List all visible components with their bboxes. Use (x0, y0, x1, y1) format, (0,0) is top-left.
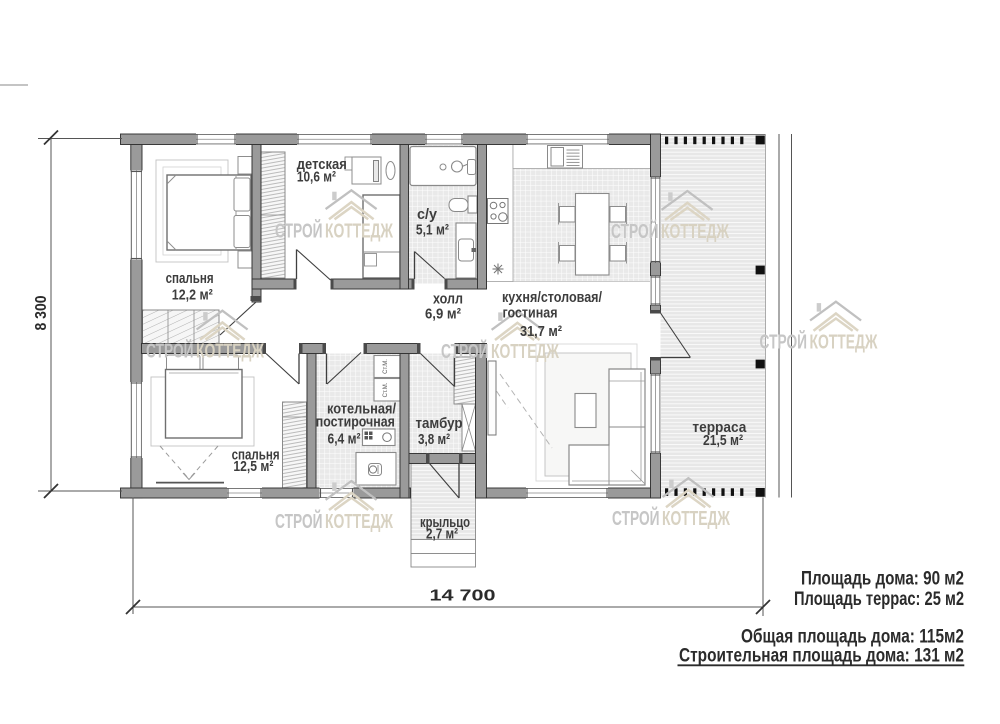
svg-text:постирочная: постирочная (316, 414, 395, 431)
svg-text:тамбур: тамбур (416, 415, 463, 432)
svg-text:5,1 м²: 5,1 м² (416, 222, 449, 239)
svg-text:кухня/столовая/: кухня/столовая/ (502, 289, 603, 306)
svg-text:14 700: 14 700 (430, 588, 496, 605)
svg-text:6,9 м²: 6,9 м² (425, 306, 461, 323)
svg-text:2,7 м²: 2,7 м² (426, 526, 458, 543)
svg-text:гостиная: гостиная (503, 305, 558, 322)
svg-text:6,4 м²: 6,4 м² (328, 431, 361, 448)
svg-text:спальня: спальня (166, 270, 214, 287)
svg-text:с/у: с/у (417, 206, 438, 223)
svg-text:21,5 м²: 21,5 м² (703, 432, 743, 449)
svg-text:Площадь дома: 90 м2: Площадь дома: 90 м2 (801, 568, 964, 589)
svg-text:31,7 м²: 31,7 м² (520, 323, 562, 340)
svg-text:Ст.М.: Ст.М. (383, 382, 389, 397)
svg-text:Строительная площадь дома: 131: Строительная площадь дома: 131 м2 (679, 646, 964, 667)
svg-text:12,2 м²: 12,2 м² (172, 287, 213, 304)
svg-text:12,5 м²: 12,5 м² (233, 458, 273, 475)
svg-text:3,8 м²: 3,8 м² (418, 431, 450, 448)
svg-text:Общая площадь дома: 115м2: Общая площадь дома: 115м2 (741, 626, 964, 647)
svg-text:Площадь террас: 25 м2: Площадь террас: 25 м2 (794, 589, 964, 610)
svg-text:10,6 м²: 10,6 м² (297, 169, 336, 186)
svg-text:Ст.М.: Ст.М. (383, 359, 389, 374)
svg-text:8 300: 8 300 (33, 295, 50, 330)
